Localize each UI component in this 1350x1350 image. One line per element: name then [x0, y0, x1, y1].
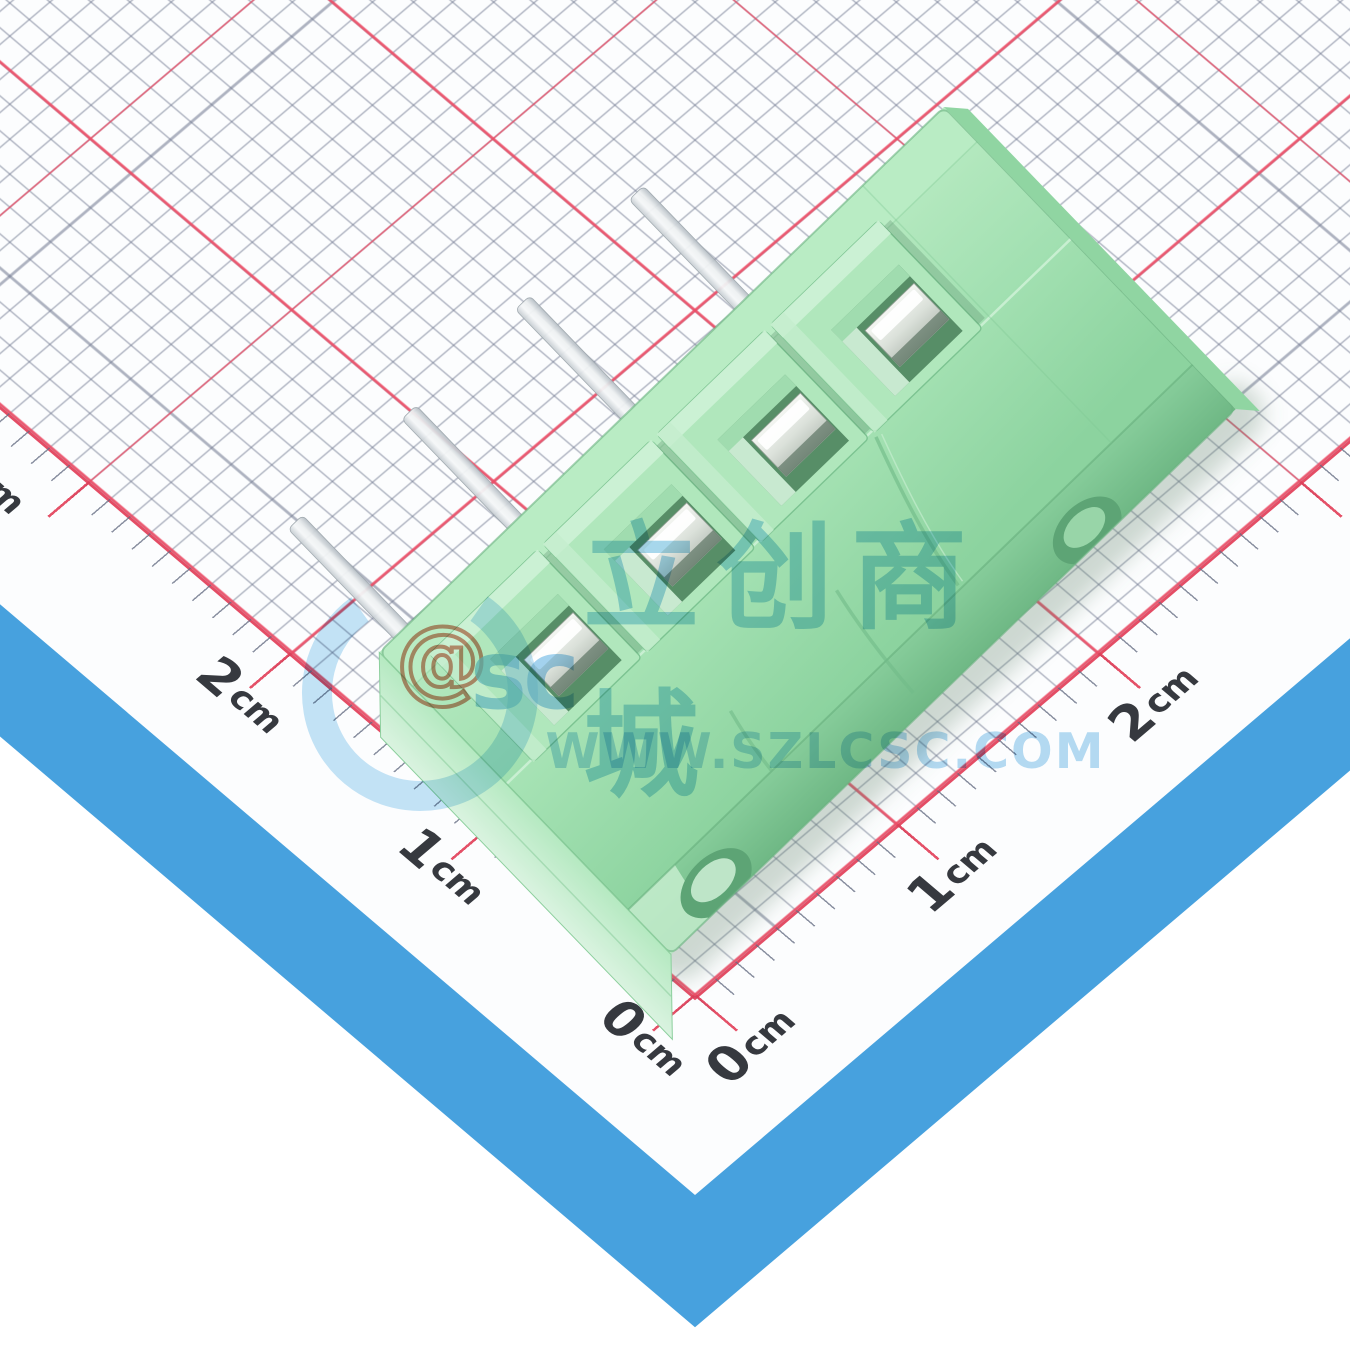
- product-photo-canvas: 0cm 1cm 2cm 3cm 0cm 1cm 2cm: [0, 0, 1350, 1350]
